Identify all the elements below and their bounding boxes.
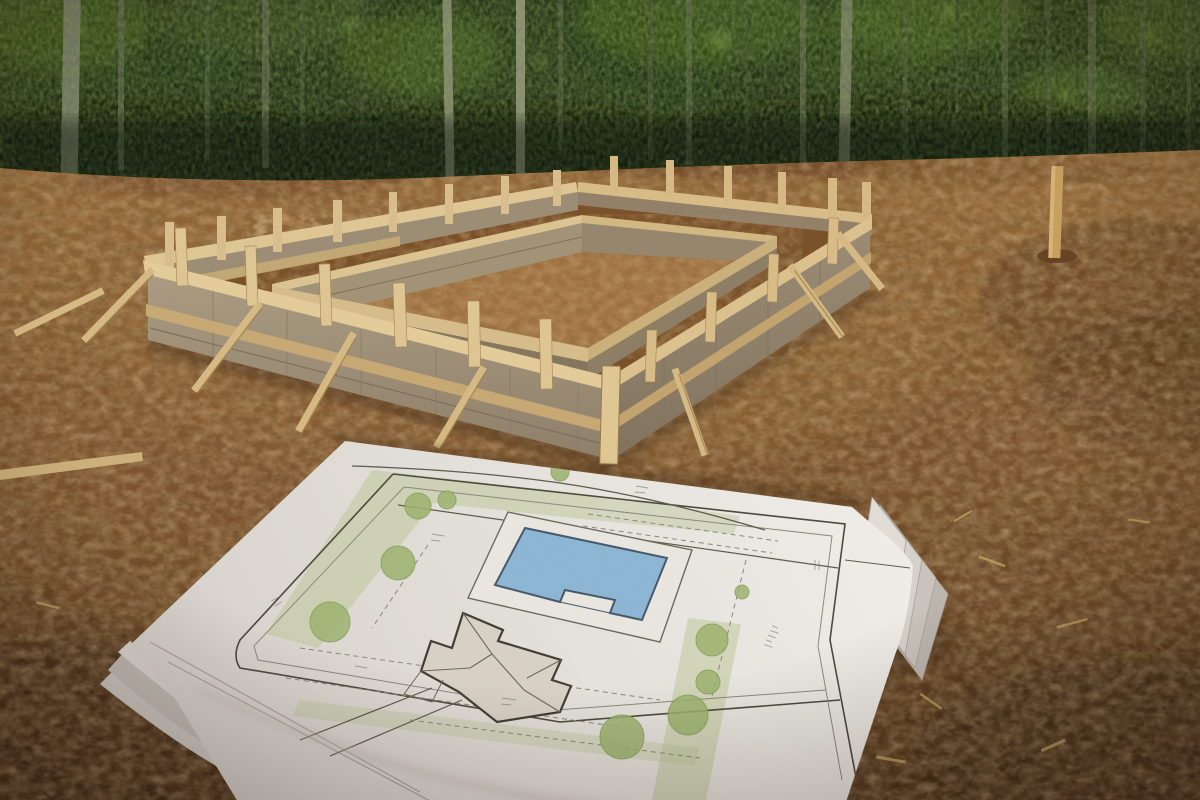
construction-site-photo [0, 0, 1200, 800]
vignette [0, 0, 1200, 800]
